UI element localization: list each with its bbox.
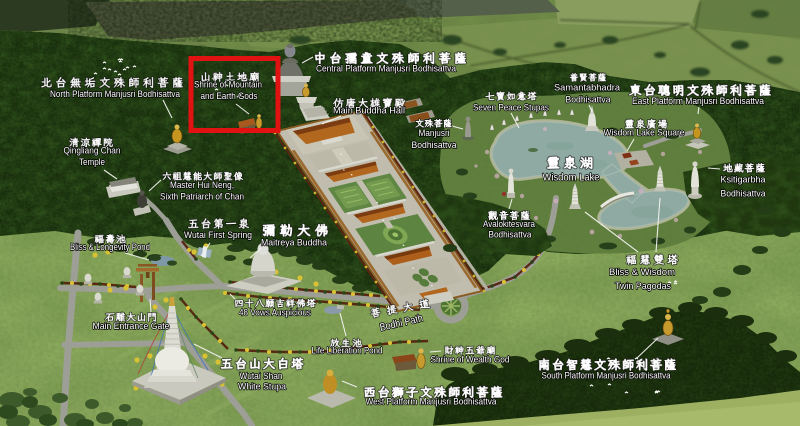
svg-text:North Platform Manjusri Bodhis: North Platform Manjusri Bodhisattva [50, 89, 181, 100]
svg-text:Bodhisattva: Bodhisattva [566, 95, 612, 106]
svg-text:Maitreya Buddha: Maitreya Buddha [261, 238, 328, 249]
svg-text:White Stupa: White Stupa [238, 382, 287, 393]
svg-text:Wisdom Lake Square: Wisdom Lake Square [604, 128, 685, 139]
svg-text:Manjusri: Manjusri [419, 128, 450, 138]
svg-text:Shrine of Wealth God: Shrine of Wealth God [431, 355, 510, 366]
svg-text:Wutai Shan: Wutai Shan [240, 371, 283, 382]
svg-text:and Earth Gods: and Earth Gods [201, 91, 258, 102]
svg-text:Bodhisattva: Bodhisattva [489, 230, 533, 241]
svg-text:Main Entrance Gate: Main Entrance Gate [93, 321, 170, 332]
svg-text:Twin Pagodas: Twin Pagodas [615, 281, 671, 292]
svg-text:Temple: Temple [79, 157, 105, 168]
svg-text:Bliss & Wisdom: Bliss & Wisdom [609, 267, 675, 278]
svg-text:Qingliang Chan: Qingliang Chan [64, 146, 121, 157]
svg-text:Wutai First Spring: Wutai First Spring [184, 230, 252, 241]
svg-text:Master Hui Neng,: Master Hui Neng, [170, 180, 234, 191]
svg-text:Bliss & Longevity Pond: Bliss & Longevity Pond [70, 242, 150, 253]
svg-text:South Platform Manjusri Bodhis: South Platform Manjusri Bodhisattva [542, 371, 672, 382]
svg-text:Avalokitesvara: Avalokitesvara [483, 219, 536, 230]
svg-text:Samantabhadra: Samantabhadra [554, 83, 621, 94]
svg-text:Sixth Patriarch of Chan: Sixth Patriarch of Chan [160, 192, 244, 203]
svg-text:East Platform Manjusri Bodhisa: East Platform Manjusri Bodhisattva [632, 96, 765, 107]
svg-text:Life Liberation Pond: Life Liberation Pond [312, 346, 383, 357]
svg-text:Bodhisattva: Bodhisattva [721, 189, 767, 200]
svg-text:Central Platform Manjusri Bodh: Central Platform Manjusri Bodhisattva [316, 64, 457, 75]
svg-text:48 Vows Auspicious: 48 Vows Auspicious [239, 308, 311, 319]
svg-text:Shrine of Mountain: Shrine of Mountain [194, 80, 262, 91]
svg-text:Main Buddha Hall: Main Buddha Hall [333, 106, 405, 117]
svg-text:Bodhisattva: Bodhisattva [412, 140, 457, 150]
svg-text:Seven Peace Stupas: Seven Peace Stupas [473, 103, 549, 114]
svg-text:Wisdom Lake: Wisdom Lake [543, 172, 600, 184]
svg-text:West Platform Manjusri Bodhisa: West Platform Manjusri Bodhisattva [366, 397, 498, 408]
svg-text:Ksitigarbha: Ksitigarbha [721, 175, 767, 186]
